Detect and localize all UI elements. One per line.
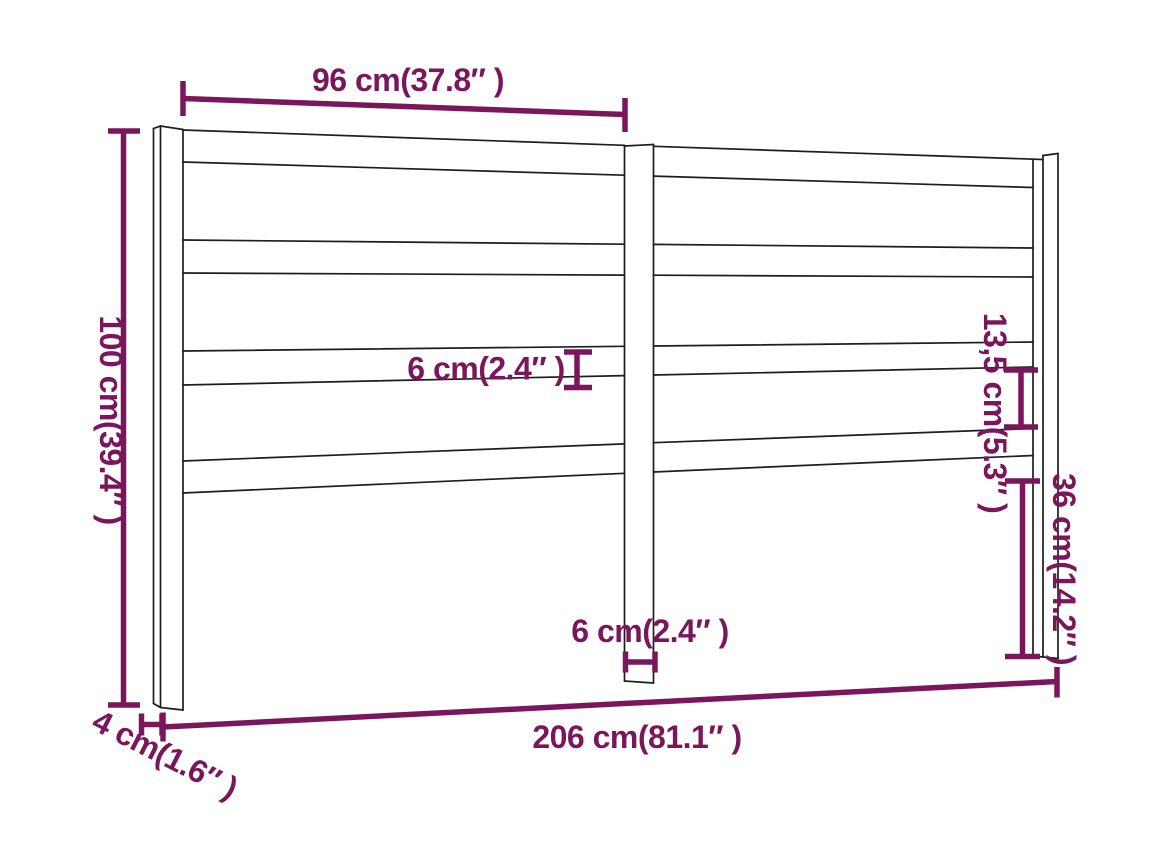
slat-3 xyxy=(183,342,1033,385)
label-slat-thickness: 6 cm(2.4″ ) xyxy=(407,351,564,387)
left-post xyxy=(154,126,184,710)
dim-line-center-post-width xyxy=(626,652,656,673)
label-top-width: 96 cm(37.8″ ) xyxy=(312,62,504,98)
label-center-post-width: 6 cm(2.4″ ) xyxy=(571,613,728,649)
slat-2 xyxy=(183,240,1033,277)
label-total-height: 100 cm(39.4″ ) xyxy=(93,315,129,524)
center-post xyxy=(625,145,654,684)
dimension-diagram: 96 cm(37.8″ ) 100 cm(39.4″ ) 6 cm(2.4″ )… xyxy=(0,0,1156,867)
slat-1 xyxy=(183,130,1043,188)
headboard-drawing: 96 cm(37.8″ ) 100 cm(39.4″ ) 6 cm(2.4″ )… xyxy=(0,0,1156,867)
label-slat-gap: 13,5 cm(5.3″ ) xyxy=(977,313,1013,513)
label-total-width: 206 cm(81.1″ ) xyxy=(532,719,741,755)
dim-line-slat-thickness xyxy=(564,352,592,388)
slat-4 xyxy=(183,429,1033,494)
label-leg-height: 36 cm(14.2″ ) xyxy=(1046,473,1082,665)
